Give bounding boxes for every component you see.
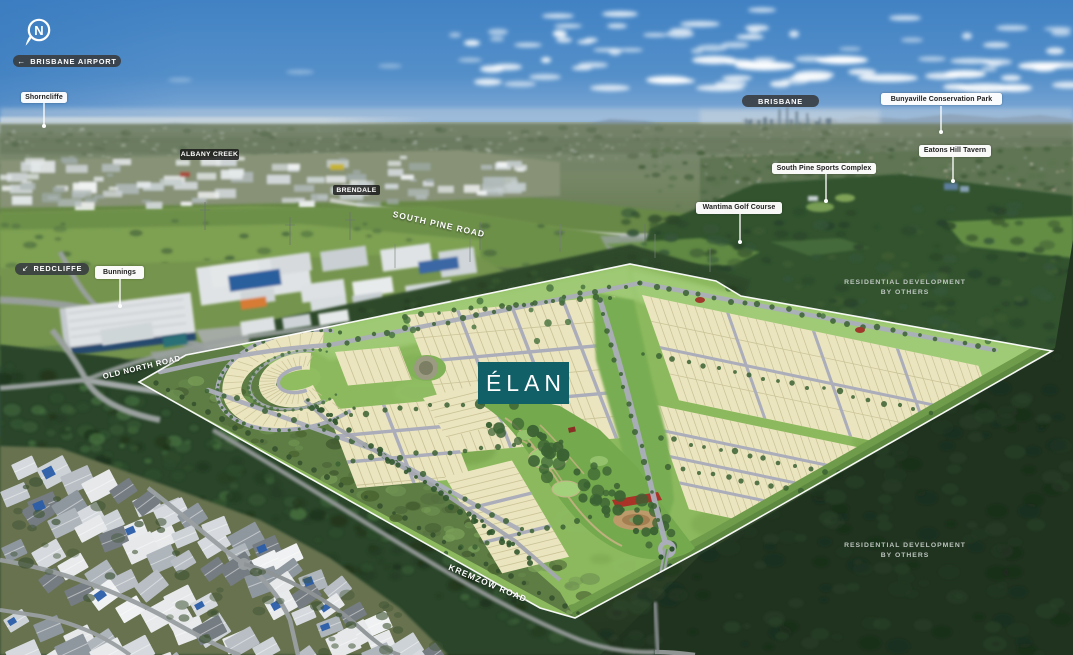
svg-text:N: N: [34, 23, 43, 38]
